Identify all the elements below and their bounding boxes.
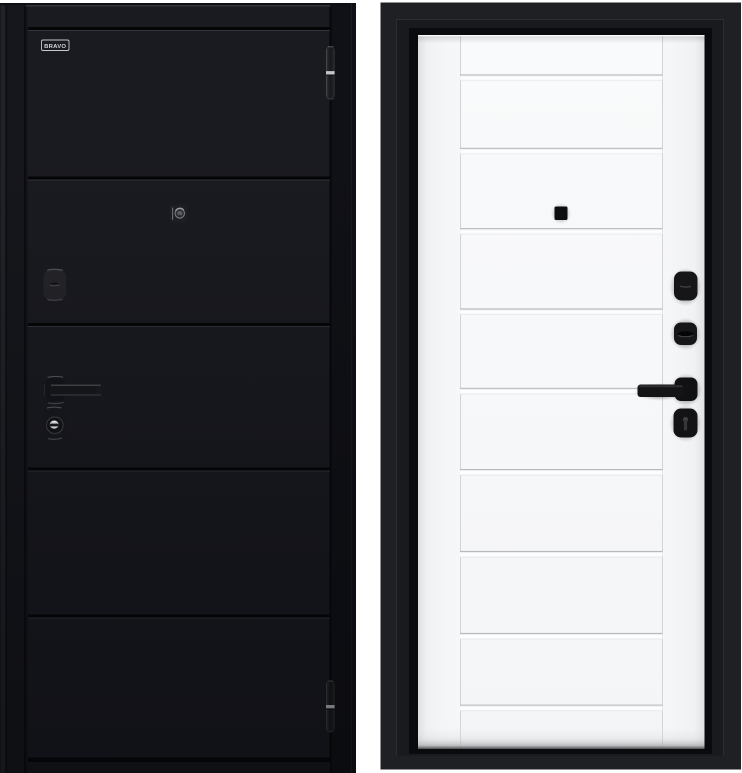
svg-text:BRAVO: BRAVO [44, 44, 66, 50]
